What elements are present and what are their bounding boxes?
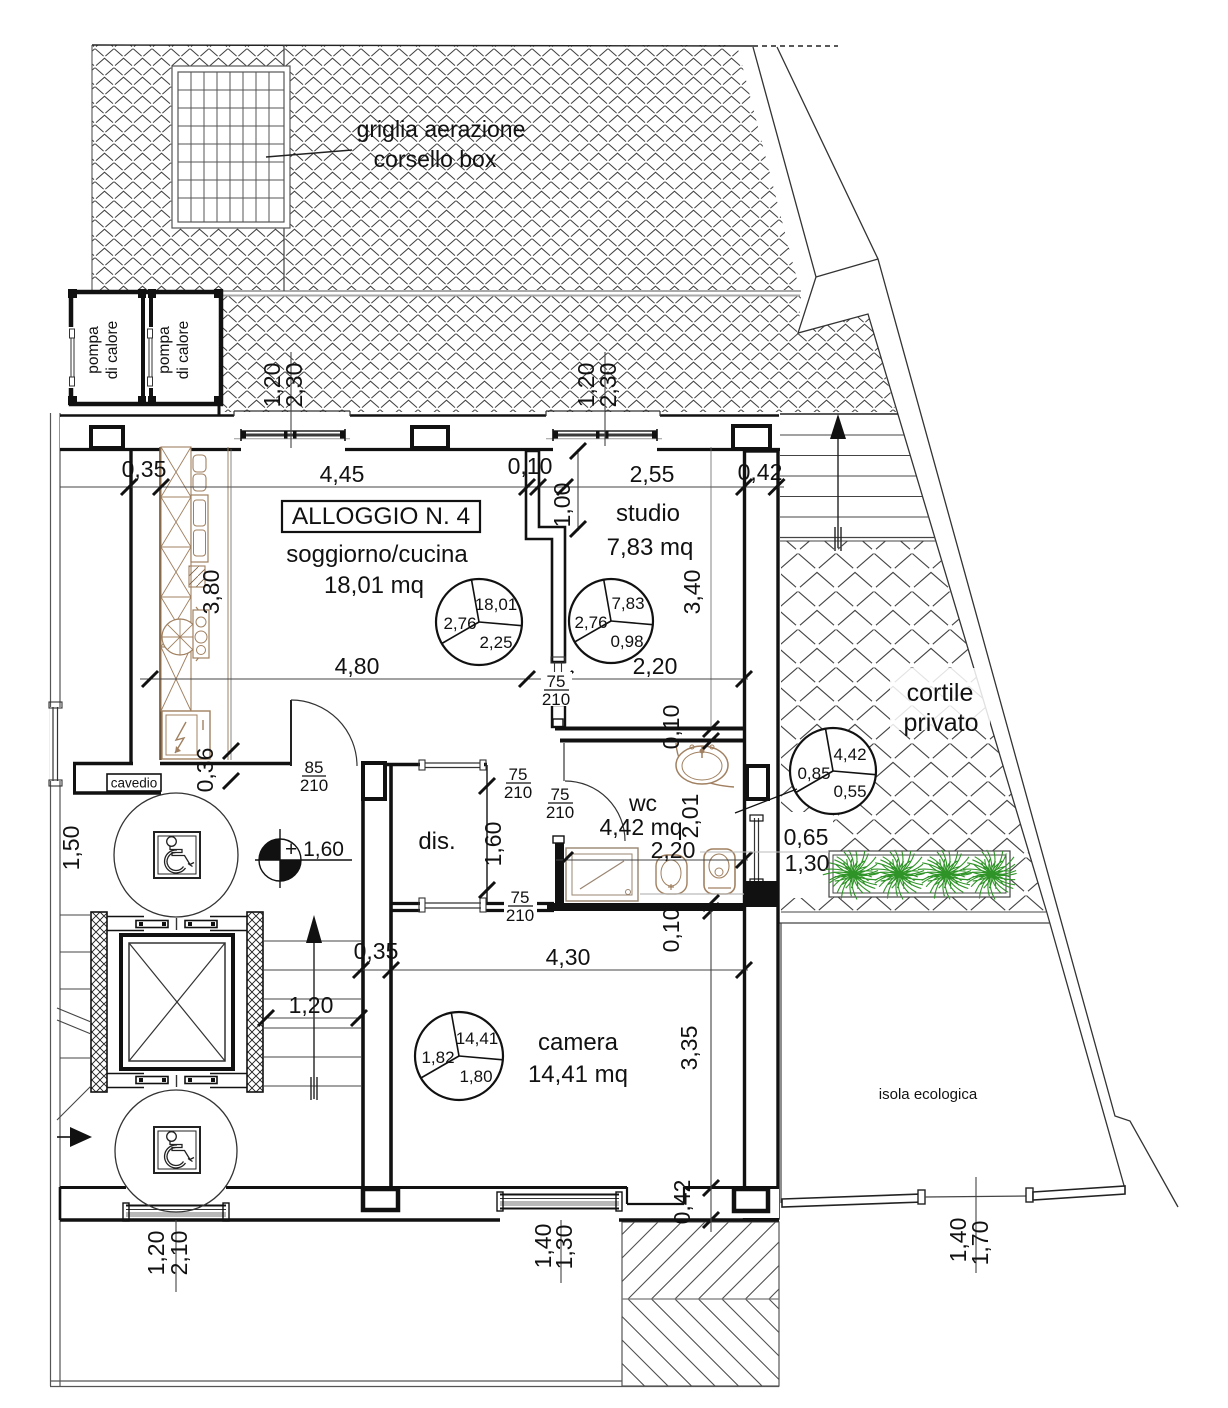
svg-text:0,65: 0,65 [784,824,829,850]
svg-text:75: 75 [551,785,570,804]
svg-text:wc: wc [628,790,657,816]
svg-text:2,20: 2,20 [633,653,678,679]
svg-text:+ 1,60: + 1,60 [285,838,344,861]
svg-text:0,42: 0,42 [669,1180,695,1225]
svg-text:corsello box: corsello box [374,146,497,172]
svg-text:0,36: 0,36 [192,748,218,793]
svg-text:cavedio: cavedio [111,776,158,791]
svg-text:210: 210 [546,803,574,822]
svg-text:2,20: 2,20 [651,837,696,863]
svg-text:2,01: 2,01 [677,794,703,839]
svg-text:ALLOGGIO N. 4: ALLOGGIO N. 4 [292,503,470,530]
svg-text:0,35: 0,35 [354,938,399,964]
svg-text:pompa: pompa [156,326,173,374]
svg-text:di calore: di calore [175,321,192,380]
svg-text:1,60: 1,60 [480,822,506,867]
svg-text:pompa: pompa [85,326,102,374]
svg-text:2,25: 2,25 [479,633,512,652]
svg-text:0,10: 0,10 [658,705,684,750]
svg-text:1,20: 1,20 [289,992,334,1018]
svg-text:2,55: 2,55 [630,461,675,487]
svg-text:dis.: dis. [418,828,455,855]
svg-text:1,00: 1,00 [549,483,575,528]
svg-text:1,30: 1,30 [551,1225,577,1270]
svg-text:1,80: 1,80 [459,1067,492,1086]
svg-text:soggiorno/cucina: soggiorno/cucina [286,541,468,568]
svg-text:2,30: 2,30 [281,363,307,408]
svg-text:1,30: 1,30 [785,850,830,876]
svg-text:210: 210 [506,906,534,925]
svg-text:0,98: 0,98 [610,632,643,651]
svg-text:0,35: 0,35 [122,456,167,482]
svg-text:0,42: 0,42 [738,459,783,485]
svg-text:camera: camera [538,1029,619,1056]
svg-text:18,01 mq: 18,01 mq [324,572,424,599]
svg-text:7,83: 7,83 [611,594,644,613]
svg-text:4,80: 4,80 [335,653,380,679]
svg-text:2,76: 2,76 [443,614,476,633]
svg-text:0,85: 0,85 [797,764,830,783]
svg-text:1,82: 1,82 [421,1048,454,1067]
svg-text:2,30: 2,30 [595,363,621,408]
svg-text:1,70: 1,70 [967,1221,993,1266]
svg-text:0,10: 0,10 [508,453,553,479]
svg-text:14,41 mq: 14,41 mq [528,1061,628,1088]
svg-text:75: 75 [547,672,566,691]
svg-text:2,76: 2,76 [574,613,607,632]
svg-text:3,35: 3,35 [676,1026,702,1071]
svg-text:3,80: 3,80 [198,570,224,615]
svg-text:210: 210 [504,783,532,802]
svg-text:14,41: 14,41 [456,1029,499,1048]
svg-text:18,01: 18,01 [475,595,518,614]
svg-text:75: 75 [511,888,530,907]
svg-text:0,10: 0,10 [658,908,684,953]
svg-text:cortile: cortile [907,679,974,707]
svg-text:75: 75 [509,765,528,784]
svg-text:4,42: 4,42 [833,745,866,764]
svg-text:griglia aerazione: griglia aerazione [357,116,526,142]
svg-text:210: 210 [300,776,328,795]
svg-text:2,10: 2,10 [166,1231,192,1276]
svg-text:7,83 mq: 7,83 mq [607,534,694,561]
svg-text:studio: studio [616,500,680,527]
svg-text:4,45: 4,45 [320,461,365,487]
svg-text:85: 85 [305,758,324,777]
svg-text:1,50: 1,50 [58,826,84,871]
svg-text:di calore: di calore [104,321,121,380]
svg-text:0,55: 0,55 [833,782,866,801]
svg-text:3,40: 3,40 [679,570,705,615]
svg-text:4,30: 4,30 [546,944,591,970]
svg-text:210: 210 [542,690,570,709]
svg-text:privato: privato [903,709,978,737]
svg-text:isola ecologica: isola ecologica [879,1086,978,1103]
